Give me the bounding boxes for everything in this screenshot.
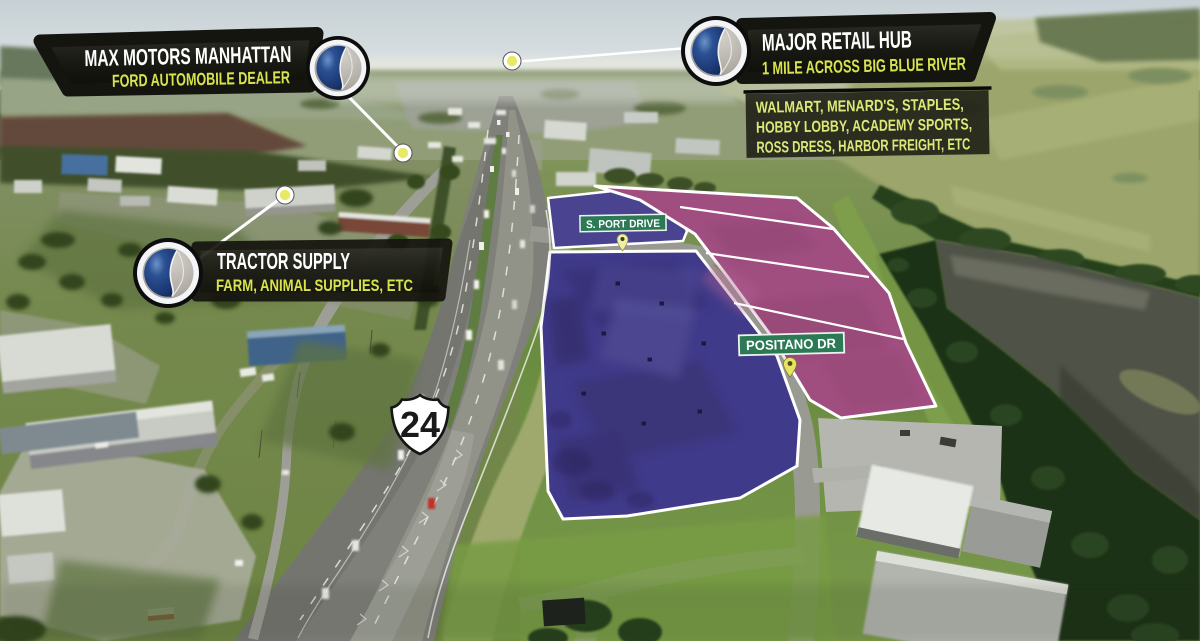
svg-text:FORD AUTOMOBILE DEALER: FORD AUTOMOBILE DEALER [112, 67, 291, 91]
svg-text:WALMART, MENARD'S, STAPLES,: WALMART, MENARD'S, STAPLES, [756, 96, 964, 116]
svg-text:MAJOR RETAIL HUB: MAJOR RETAIL HUB [762, 26, 913, 56]
svg-text:HOBBY LOBBY, ACADEMY SPORTS,: HOBBY LOBBY, ACADEMY SPORTS, [756, 116, 972, 136]
svg-text:FARM, ANIMAL SUPPLIES, ETC: FARM, ANIMAL SUPPLIES, ETC [216, 276, 413, 295]
svg-text:24: 24 [400, 404, 440, 445]
svg-text:POSITANO DR: POSITANO DR [746, 336, 837, 353]
svg-text:S. PORT DRIVE: S. PORT DRIVE [586, 218, 660, 231]
svg-text:ROSS DRESS, HARBOR FREIGHT, ET: ROSS DRESS, HARBOR FREIGHT, ETC [756, 136, 971, 156]
svg-text:TRACTOR SUPPLY: TRACTOR SUPPLY [217, 248, 350, 274]
svg-text:MAX MOTORS MANHATTAN: MAX MOTORS MANHATTAN [84, 41, 291, 71]
